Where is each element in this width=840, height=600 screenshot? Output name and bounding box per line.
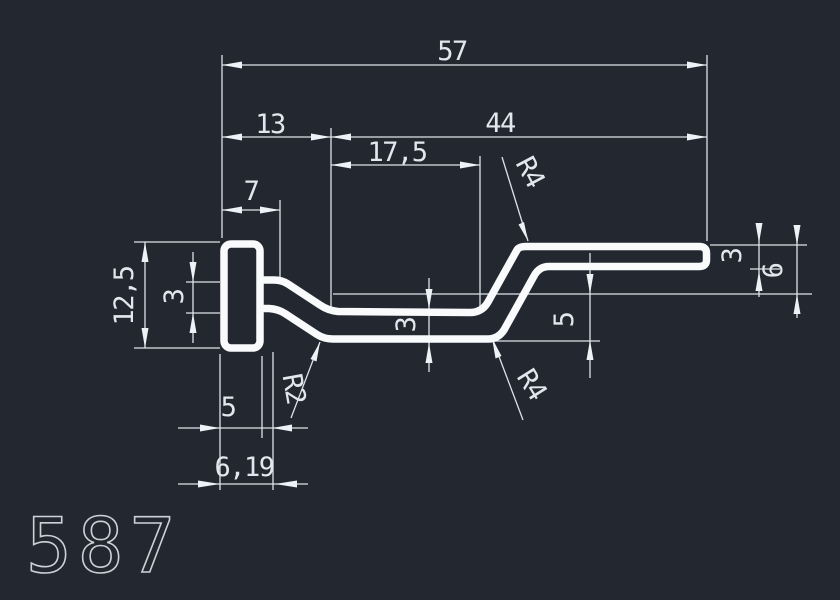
- drawing-canvas: 57 13 44 17,5 7 5 6,19 12,5 3 3 5 3 6 R4…: [0, 0, 840, 600]
- dim-arm-thickness: 3: [159, 289, 190, 304]
- profile-outline: [224, 244, 707, 348]
- dim-head-width: 5: [221, 392, 236, 423]
- dim-upper-left: 13: [255, 109, 285, 140]
- dimension-arrows: [142, 62, 801, 488]
- dim-head-ledge: 7: [244, 176, 259, 207]
- radius-label-bottom: R4: [510, 364, 552, 406]
- dim-end-thickness: 3: [717, 248, 748, 263]
- dimension-lines: [145, 65, 797, 484]
- dim-middle-span: 17,5: [367, 137, 426, 168]
- dim-step-height: 5: [549, 312, 580, 327]
- profile-head: [224, 244, 260, 348]
- profile-arm: [260, 247, 707, 340]
- dim-overall-width: 57: [437, 36, 467, 67]
- dim-foot-width: 6,19: [214, 452, 273, 483]
- dim-end-offset: 6: [758, 263, 789, 278]
- dim-middle-thickness: 3: [391, 317, 422, 332]
- extension-lines: [134, 55, 812, 490]
- dim-head-height: 12,5: [109, 266, 140, 325]
- radius-label-top: R4: [509, 152, 550, 193]
- cad-viewport: 57 13 44 17,5 7 5 6,19 12,5 3 3 5 3 6 R4…: [0, 0, 840, 600]
- dimension-texts: 57 13 44 17,5 7 5 6,19 12,5 3 3 5 3 6 R4…: [109, 36, 789, 483]
- dim-upper-right: 44: [485, 108, 515, 139]
- part-number: 587: [26, 501, 181, 590]
- radius-label-small: R2: [276, 371, 312, 405]
